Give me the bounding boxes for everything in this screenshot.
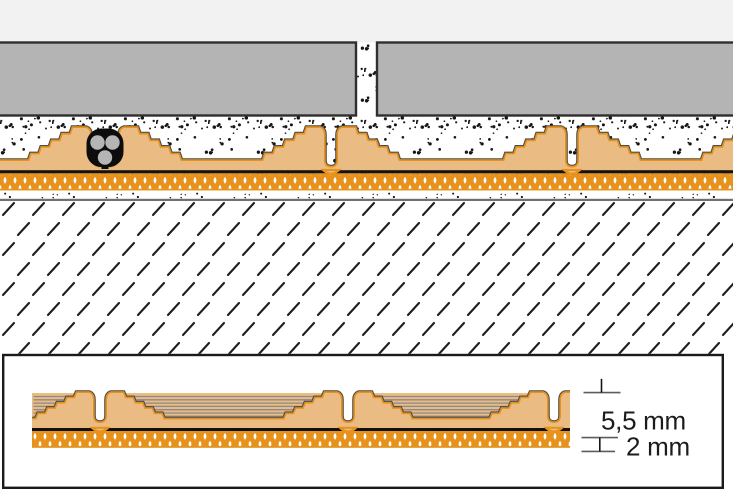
fleece-band: [0, 173, 733, 190]
bonding-strip: [0, 191, 733, 198]
detail-fleece-band: [32, 431, 570, 448]
cable-conductor: [105, 135, 119, 149]
membrane-base-line: [0, 170, 733, 173]
substrate-hatch: [0, 201, 733, 354]
cable-conductor: [98, 150, 112, 164]
top-background: [0, 0, 733, 43]
cross-section-svg: 5,5 mm 2 mm: [0, 0, 733, 497]
detail-base-line: [32, 428, 570, 431]
substrate-top-line: [0, 199, 733, 201]
cable-conductor: [90, 135, 104, 149]
groove-bottom: [92, 428, 108, 432]
cross-section-diagram: 5,5 mm 2 mm: [0, 0, 733, 497]
tile-left: [0, 43, 356, 116]
groove-bottom: [564, 170, 580, 174]
dimension-label-fleece-thickness: 2 mm: [626, 432, 690, 462]
groove-bottom: [340, 428, 356, 432]
heating-cable: [87, 129, 124, 170]
substrate-layer: [0, 199, 733, 354]
groove-bottom: [323, 170, 339, 174]
groove-bottom: [546, 428, 562, 432]
tile-right: [377, 43, 733, 116]
fleece-layer: [0, 170, 733, 198]
